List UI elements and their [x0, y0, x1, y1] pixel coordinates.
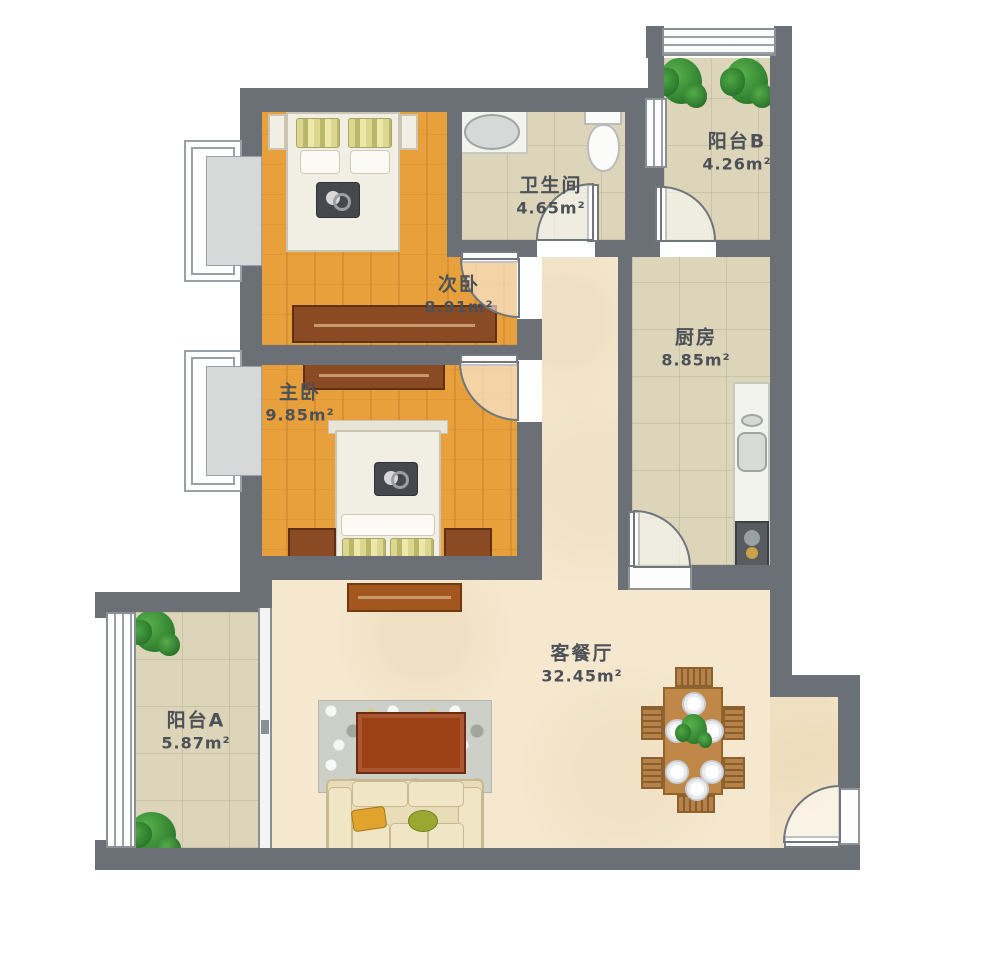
room-name: 卫生间 [516, 173, 585, 198]
dining-chair-right-2 [723, 757, 745, 789]
label-bathroom: 卫生间 4.65m² [516, 173, 585, 218]
wall-bedrooms-bottom [240, 556, 542, 580]
room-name: 厨房 [661, 325, 730, 350]
bathroom-sink-icon [464, 114, 520, 150]
sofa-back-cushion-right [408, 781, 464, 807]
master-bed-blanket [374, 462, 418, 496]
balcony-b-plant-right-icon [726, 58, 768, 104]
room-living-dining-floor-ext [770, 697, 838, 848]
bathroom-balcony-window [645, 98, 667, 168]
secondary-bed-pillow-left [300, 150, 340, 174]
balcony-b-door-leaf [655, 186, 667, 242]
hallway-floor [542, 257, 618, 580]
room-name: 阳台B [702, 129, 771, 154]
kitchen-door-sill [628, 565, 692, 590]
plate-icon [685, 777, 709, 801]
room-name: 阳台A [161, 708, 230, 733]
master-bedroom-door-leaf [460, 354, 518, 366]
secondary-bed-pillow-right [350, 150, 390, 174]
dining-chair-right-1 [723, 706, 745, 740]
master-bed-pillow-row [341, 514, 435, 536]
sofa-armrest-left [328, 787, 352, 857]
secondary-bedroom-door-leaf [461, 251, 519, 263]
gas-stove-icon [735, 521, 769, 567]
balcony-b-door-opening [660, 240, 716, 257]
secondary-bed-blanket [316, 182, 360, 218]
dining-chair-left-2 [641, 757, 663, 789]
room-area: 9.85m² [265, 405, 334, 426]
secondary-bed-side-table-left [268, 114, 286, 150]
balcony-a-window [106, 612, 136, 848]
room-name: 主卧 [265, 380, 334, 405]
kitchen-sink-icon [737, 432, 767, 472]
sofa-back-cushion-left [352, 781, 408, 807]
master-bedroom-door-opening [517, 360, 542, 422]
room-area: 4.65m² [516, 198, 585, 219]
label-master-bedroom: 主卧 9.85m² [265, 380, 334, 425]
bathroom-door-leaf [587, 184, 599, 242]
secondary-bed-cushion-right [348, 118, 392, 148]
wall-bathroom-left [447, 100, 462, 240]
floor-plan: 次卧 8.91m² 主卧 9.85m² 卫生间 4.65m² 阳台B 4.26m… [0, 0, 1000, 968]
wall-bottom [95, 848, 838, 870]
room-area: 8.85m² [661, 350, 730, 371]
label-balcony-a: 阳台A 5.87m² [161, 708, 230, 753]
room-area: 5.87m² [161, 733, 230, 754]
secondary-bed-cushion-left [296, 118, 340, 148]
room-name: 客餐厅 [541, 641, 622, 666]
room-area: 8.91m² [424, 297, 493, 318]
wall-step-vertical [838, 697, 860, 790]
sofa-pillow-yellow [351, 806, 388, 833]
balcony-b-window [662, 28, 776, 56]
room-area: 4.26m² [702, 154, 771, 175]
balcony-a-plant-top-icon [133, 610, 175, 652]
sofa [326, 779, 484, 859]
wall-balcony-a-top [112, 592, 258, 612]
wall-right-upper [770, 30, 792, 580]
room-area: 32.45m² [541, 666, 622, 687]
coffee-table [356, 712, 466, 774]
toilet-icon [587, 124, 620, 172]
bay-window-secondary-sill [206, 156, 262, 266]
room-name: 次卧 [424, 272, 493, 297]
toilet-tank [584, 110, 622, 125]
bathroom-door-opening [537, 240, 595, 257]
entry-door-leaf [784, 836, 840, 848]
wall-entry-corner [838, 843, 860, 870]
balcony-a-sliding-door [258, 608, 272, 848]
plate-icon [665, 760, 689, 784]
wall-step-horizontal [770, 675, 860, 697]
label-living-dining: 客餐厅 32.45m² [541, 641, 622, 686]
bay-window-master-sill [206, 366, 262, 476]
dining-table-plant-icon [681, 714, 707, 744]
secondary-bedroom-door-opening [517, 257, 542, 319]
dining-chair-top [675, 667, 713, 687]
entry-door-sill [838, 788, 860, 845]
kitchen-faucet [741, 414, 763, 427]
tv-cabinet [347, 583, 462, 612]
label-balcony-b: 阳台B 4.26m² [702, 129, 771, 174]
kitchen-door-leaf [628, 511, 640, 567]
label-secondary-bedroom: 次卧 8.91m² [424, 272, 493, 317]
sofa-pillow-green [408, 810, 438, 832]
dining-chair-left-1 [641, 706, 663, 740]
label-kitchen: 厨房 8.85m² [661, 325, 730, 370]
plate-icon [682, 692, 706, 716]
secondary-bed-side-table-right [400, 114, 418, 150]
